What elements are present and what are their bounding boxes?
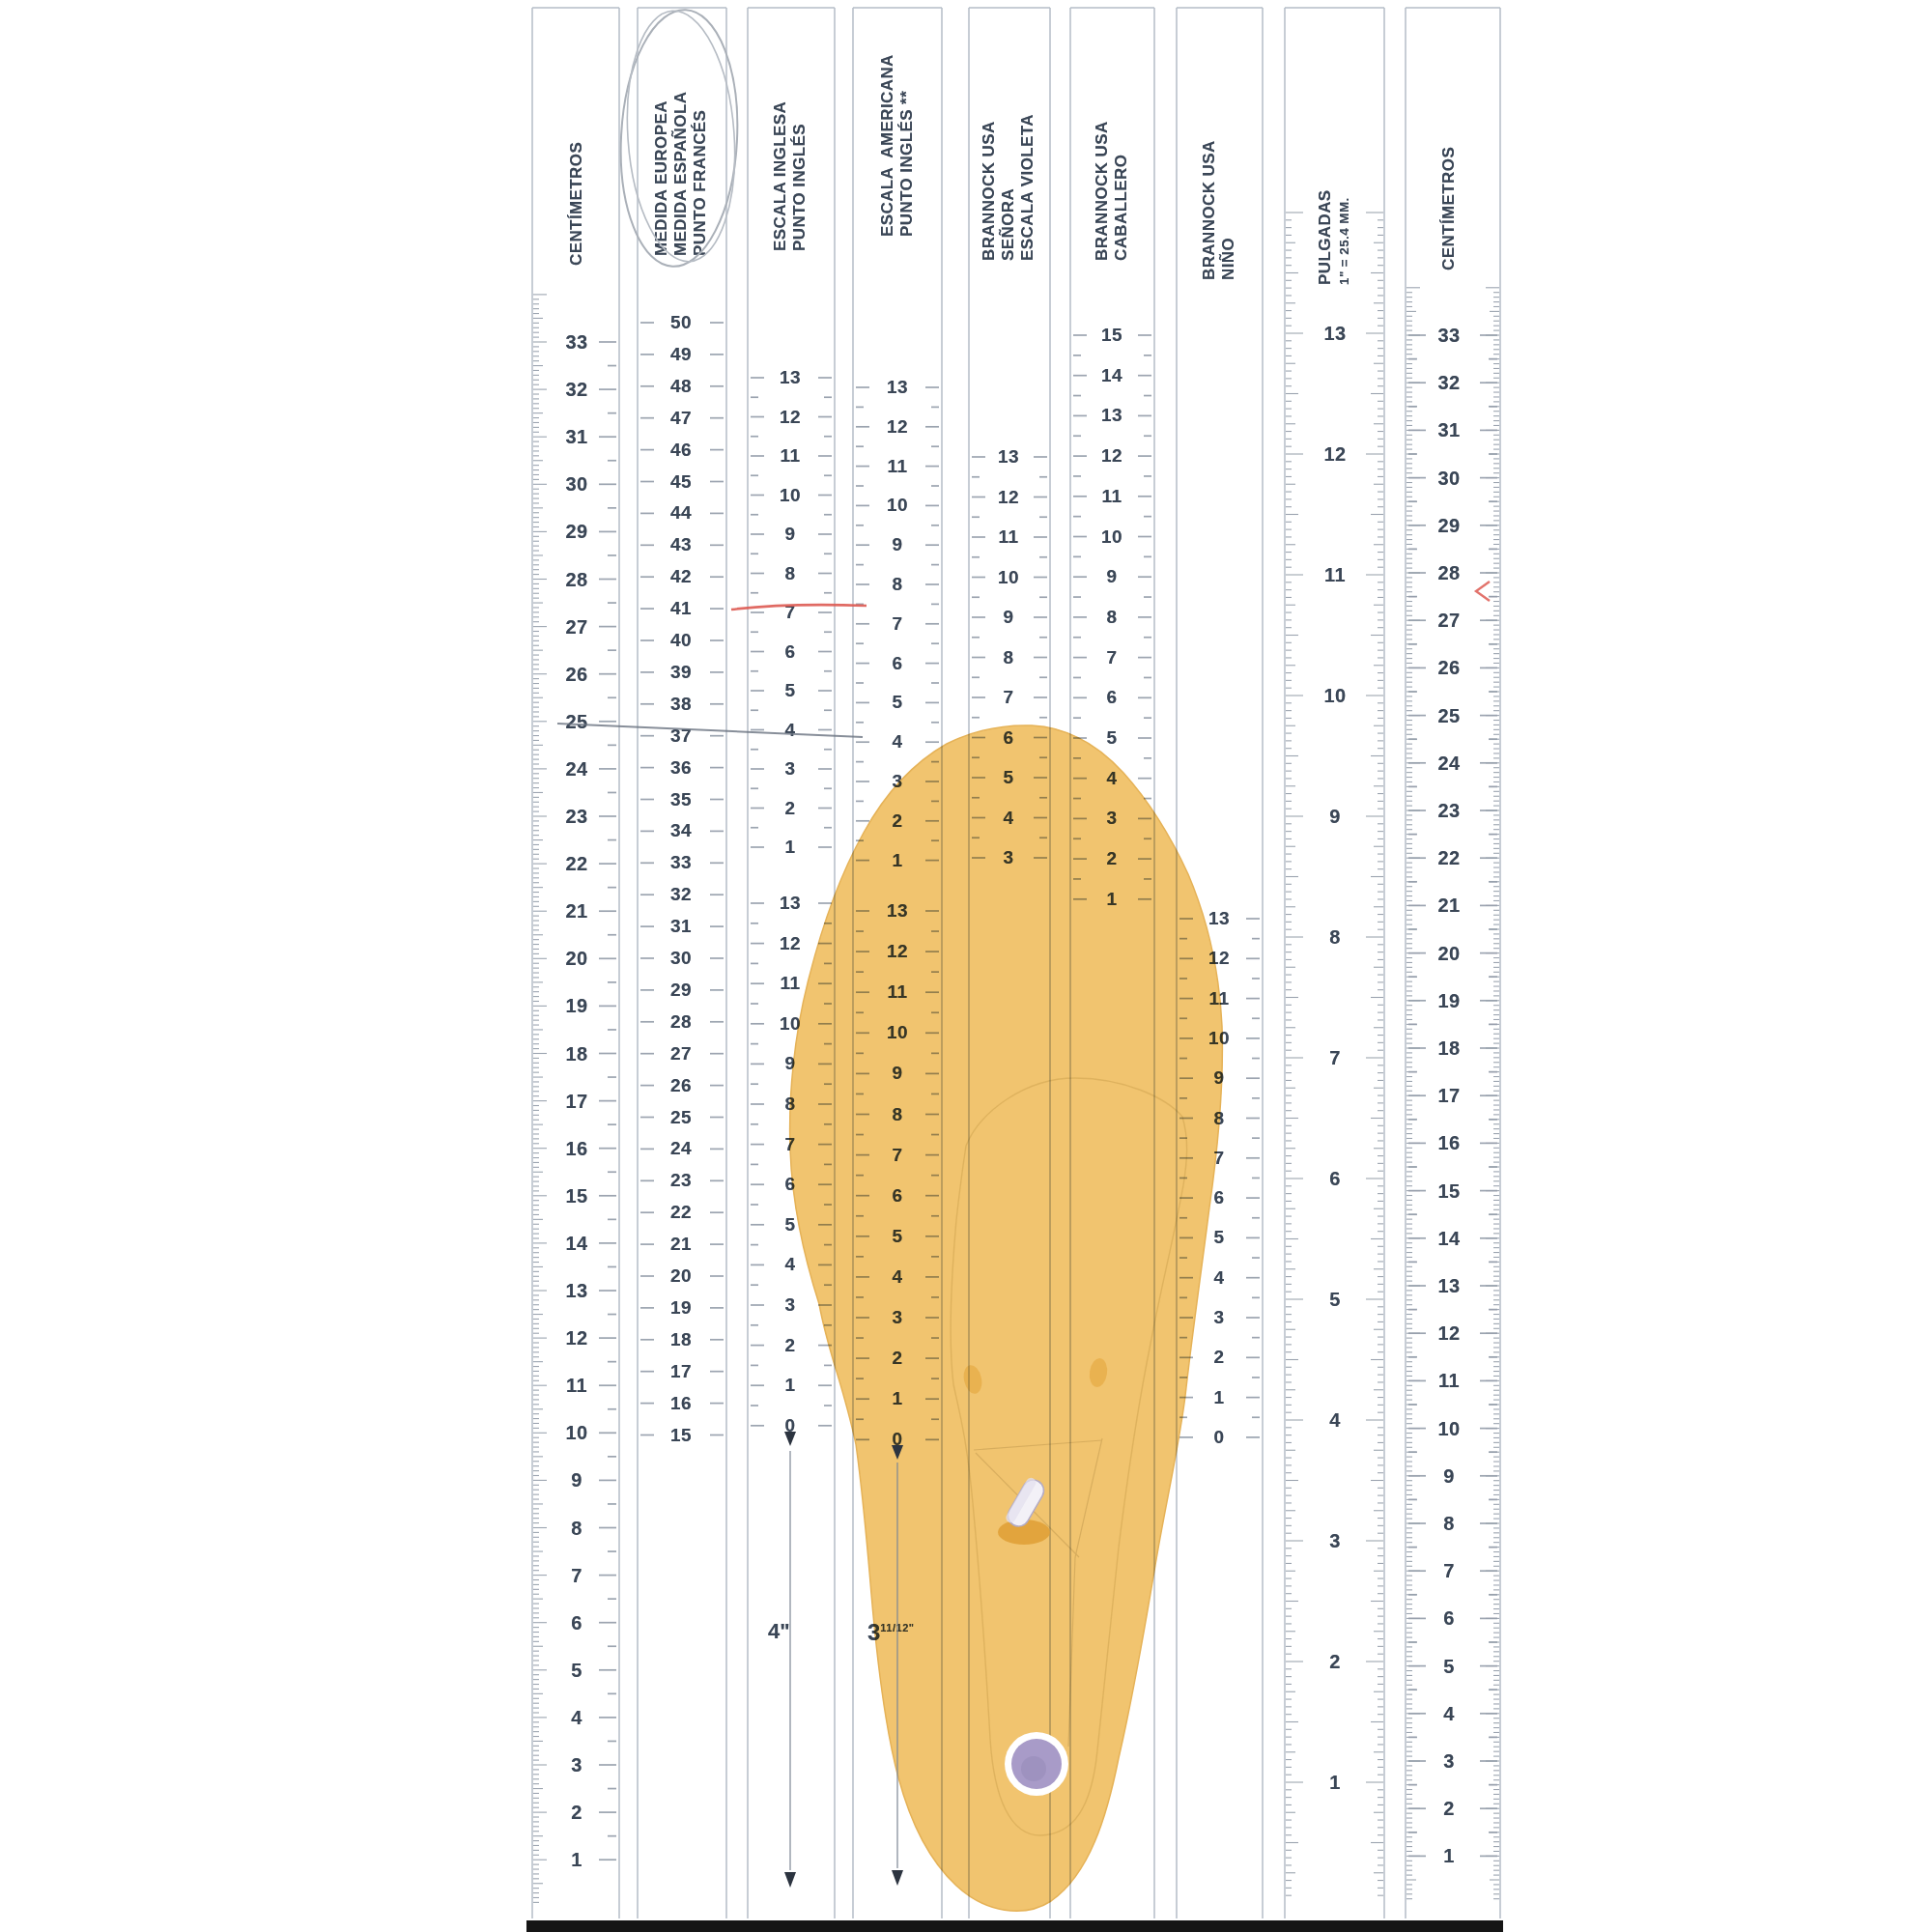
circled-header-mark	[614, 7, 744, 270]
red-pen-line	[731, 605, 867, 610]
pencil-line	[557, 724, 863, 737]
red-chevron-mark	[1476, 582, 1490, 601]
bottom-edge-bar	[526, 1920, 1503, 1932]
annotations	[0, 0, 1932, 1932]
foot-measuring-chart: 4" 311/12"	[0, 0, 1932, 1932]
